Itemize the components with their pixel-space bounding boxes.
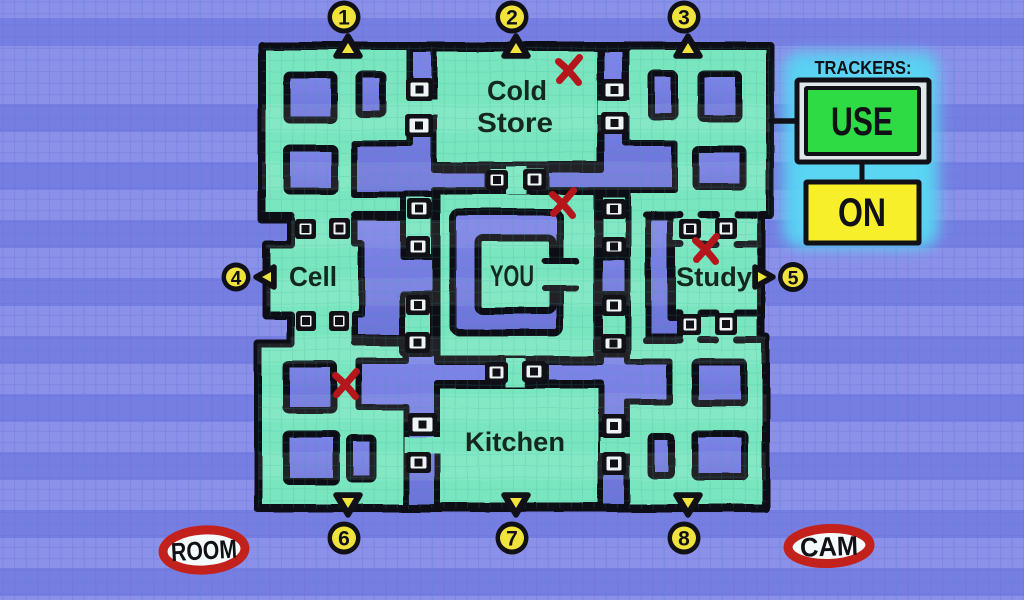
svg-text:6: 6 [338,528,350,551]
svg-text:7: 7 [506,528,518,551]
svg-text:ON: ON [838,191,886,235]
svg-text:USE: USE [831,100,893,144]
svg-text:2: 2 [506,7,518,30]
svg-text:Cell: Cell [289,261,337,292]
svg-text:TRACKERS:: TRACKERS: [815,57,912,78]
svg-text:ROOM: ROOM [170,534,237,567]
svg-text:YOU: YOU [490,260,534,293]
svg-text:4: 4 [231,269,242,290]
svg-text:Study: Study [676,262,752,292]
svg-text:Cold: Cold [487,75,547,106]
svg-text:8: 8 [678,528,690,551]
svg-text:1: 1 [338,7,350,30]
svg-text:Store: Store [477,107,553,138]
svg-text:5: 5 [788,268,799,290]
svg-text:Kitchen: Kitchen [465,427,565,457]
svg-text:3: 3 [678,7,690,30]
svg-text:CAM: CAM [800,531,859,563]
